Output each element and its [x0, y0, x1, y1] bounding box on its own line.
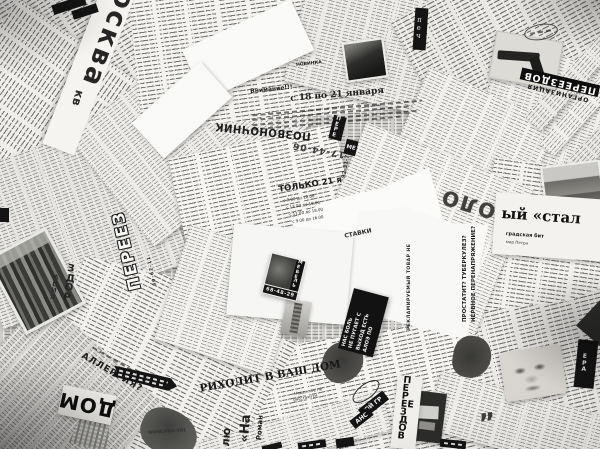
- edge-chip: [0, 208, 9, 222]
- chip-text-lines: [302, 443, 322, 448]
- newspaper-collage-photo: осква кв НОВИНКА Внимание!!! с 18 по 21 …: [0, 0, 600, 449]
- big-quote-glyph: „: [476, 396, 497, 424]
- stal-scrap: [492, 192, 600, 262]
- era-label: ЕРА: [581, 354, 591, 375]
- chip-text-lines: [444, 442, 462, 446]
- tower: [289, 303, 302, 334]
- lyu-vertical: лю: [220, 427, 232, 446]
- pereezdov-vertical-word: ПЕРЕЕЗДОВ: [397, 377, 417, 442]
- truck-body: [418, 405, 439, 419]
- nervnoe-line: НЕРВНОЕ ПЕРЕНАПРЯЖЕНИЕ?: [472, 226, 478, 322]
- vertical-ad-prostatit: ПРОСТАТИТ? ТУБЕРКУЛЕЗ? НЕРВНОЕ ПЕРЕНАПРЯ…: [463, 226, 477, 322]
- prostatit-line: ПРОСТАТИТ? ТУБЕРКУЛЕЗ?: [463, 226, 469, 322]
- stamp-text: [530, 29, 552, 35]
- pech-label: печ: [416, 17, 426, 41]
- figure-photo: [341, 37, 388, 82]
- chip-me-label: МЕ: [346, 143, 356, 151]
- truck-window: [418, 421, 435, 431]
- face-photo: [498, 343, 567, 402]
- vertical-disclaimer: РЕКЛАМИРУЕМЫЙ ТОВАР НЕ: [408, 244, 413, 330]
- na-quote-vertical: «На: [238, 414, 253, 443]
- chip-pere-label: ПЕРЕ: [331, 116, 343, 139]
